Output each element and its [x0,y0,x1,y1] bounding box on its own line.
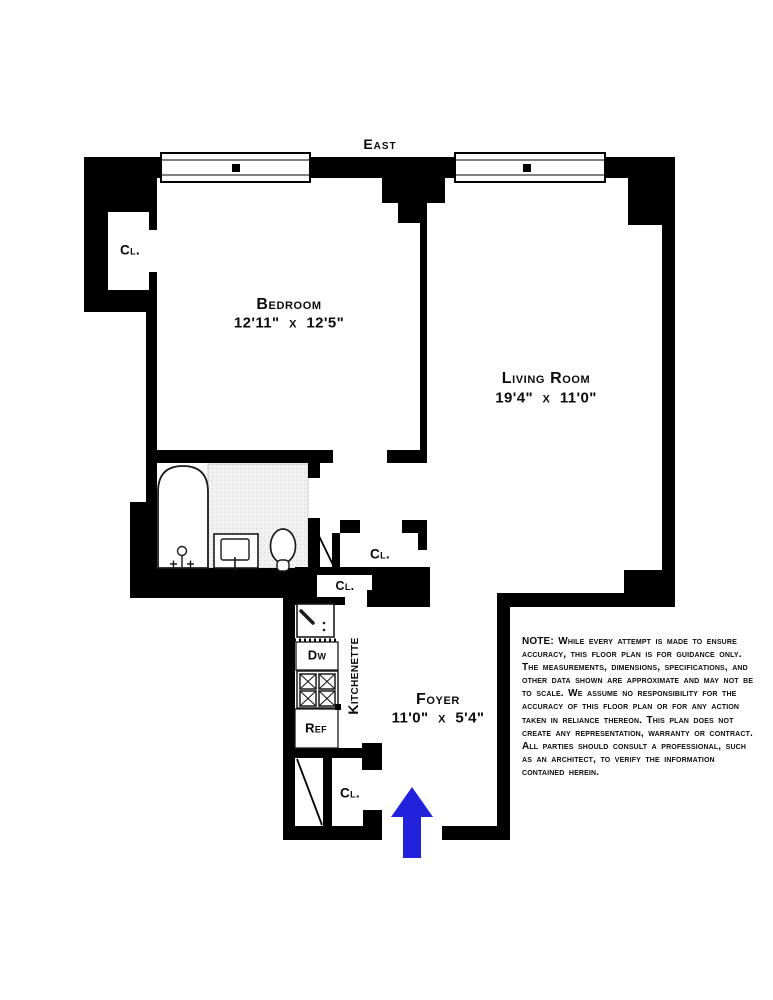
wall [84,212,108,290]
wall [497,607,510,840]
bedroom-window [161,153,310,182]
floor-plan: East Bedroom 12'11" x 12'5" Living Room … [0,0,773,1000]
bedroom-label: Bedroom [256,297,321,313]
wall [295,575,317,597]
wall [398,203,427,223]
living-room-window [455,153,605,182]
wall [497,593,675,607]
wall [420,223,427,463]
wall [402,520,427,533]
wall [148,450,333,463]
wall [130,568,310,598]
hall-closet-lower-label: Cl. [336,580,355,593]
wall [130,502,157,568]
wall [662,225,675,593]
dishwasher-label: Dw [308,649,326,662]
wall [308,518,320,570]
stove [297,671,338,708]
wall [310,157,455,178]
wall [149,212,157,230]
wall [149,272,157,290]
wall [283,748,373,758]
bathroom-door-swing [318,534,334,567]
wall [605,157,675,178]
refrigerator-handle [335,704,341,710]
entry-arrow-icon [391,787,433,858]
bedroom-dimensions: 12'11" x 12'5" [234,316,344,331]
entry-closet-label: Cl. [340,786,360,800]
living-room-label: Living Room [502,371,591,387]
wall [418,533,427,550]
wall [84,290,157,312]
wall [332,533,340,568]
bedroom-closet-label: Cl. [120,243,140,257]
refrigerator-label: Ref [305,722,327,735]
wall [624,570,662,593]
living-room-dimensions: 19'4" x 11'0" [495,391,596,406]
wall [84,157,157,212]
hall-closet-upper-label: Cl. [370,547,390,561]
wall [283,598,295,840]
window-mullion [232,164,240,172]
bathtub [158,466,208,568]
disclaimer-note: NOTE: While every attempt is made to ens… [522,635,756,779]
kitchen-sink [297,604,334,637]
wall [382,178,445,203]
wall [146,312,157,502]
wall [628,178,675,225]
window-mullion [523,164,531,172]
entry-closet-door-swing [297,759,322,825]
foyer-label: Foyer [416,692,460,708]
wall [442,826,510,840]
orientation-label-east: East [363,137,396,151]
wall [363,810,382,840]
kitchenette-label: Kitchenette [346,637,360,714]
wall [340,520,360,533]
wall [367,590,382,607]
vanity-sink [214,534,258,571]
foyer-dimensions: 11'0" x 5'4" [392,711,485,726]
wall [323,758,332,828]
wall [308,463,320,478]
